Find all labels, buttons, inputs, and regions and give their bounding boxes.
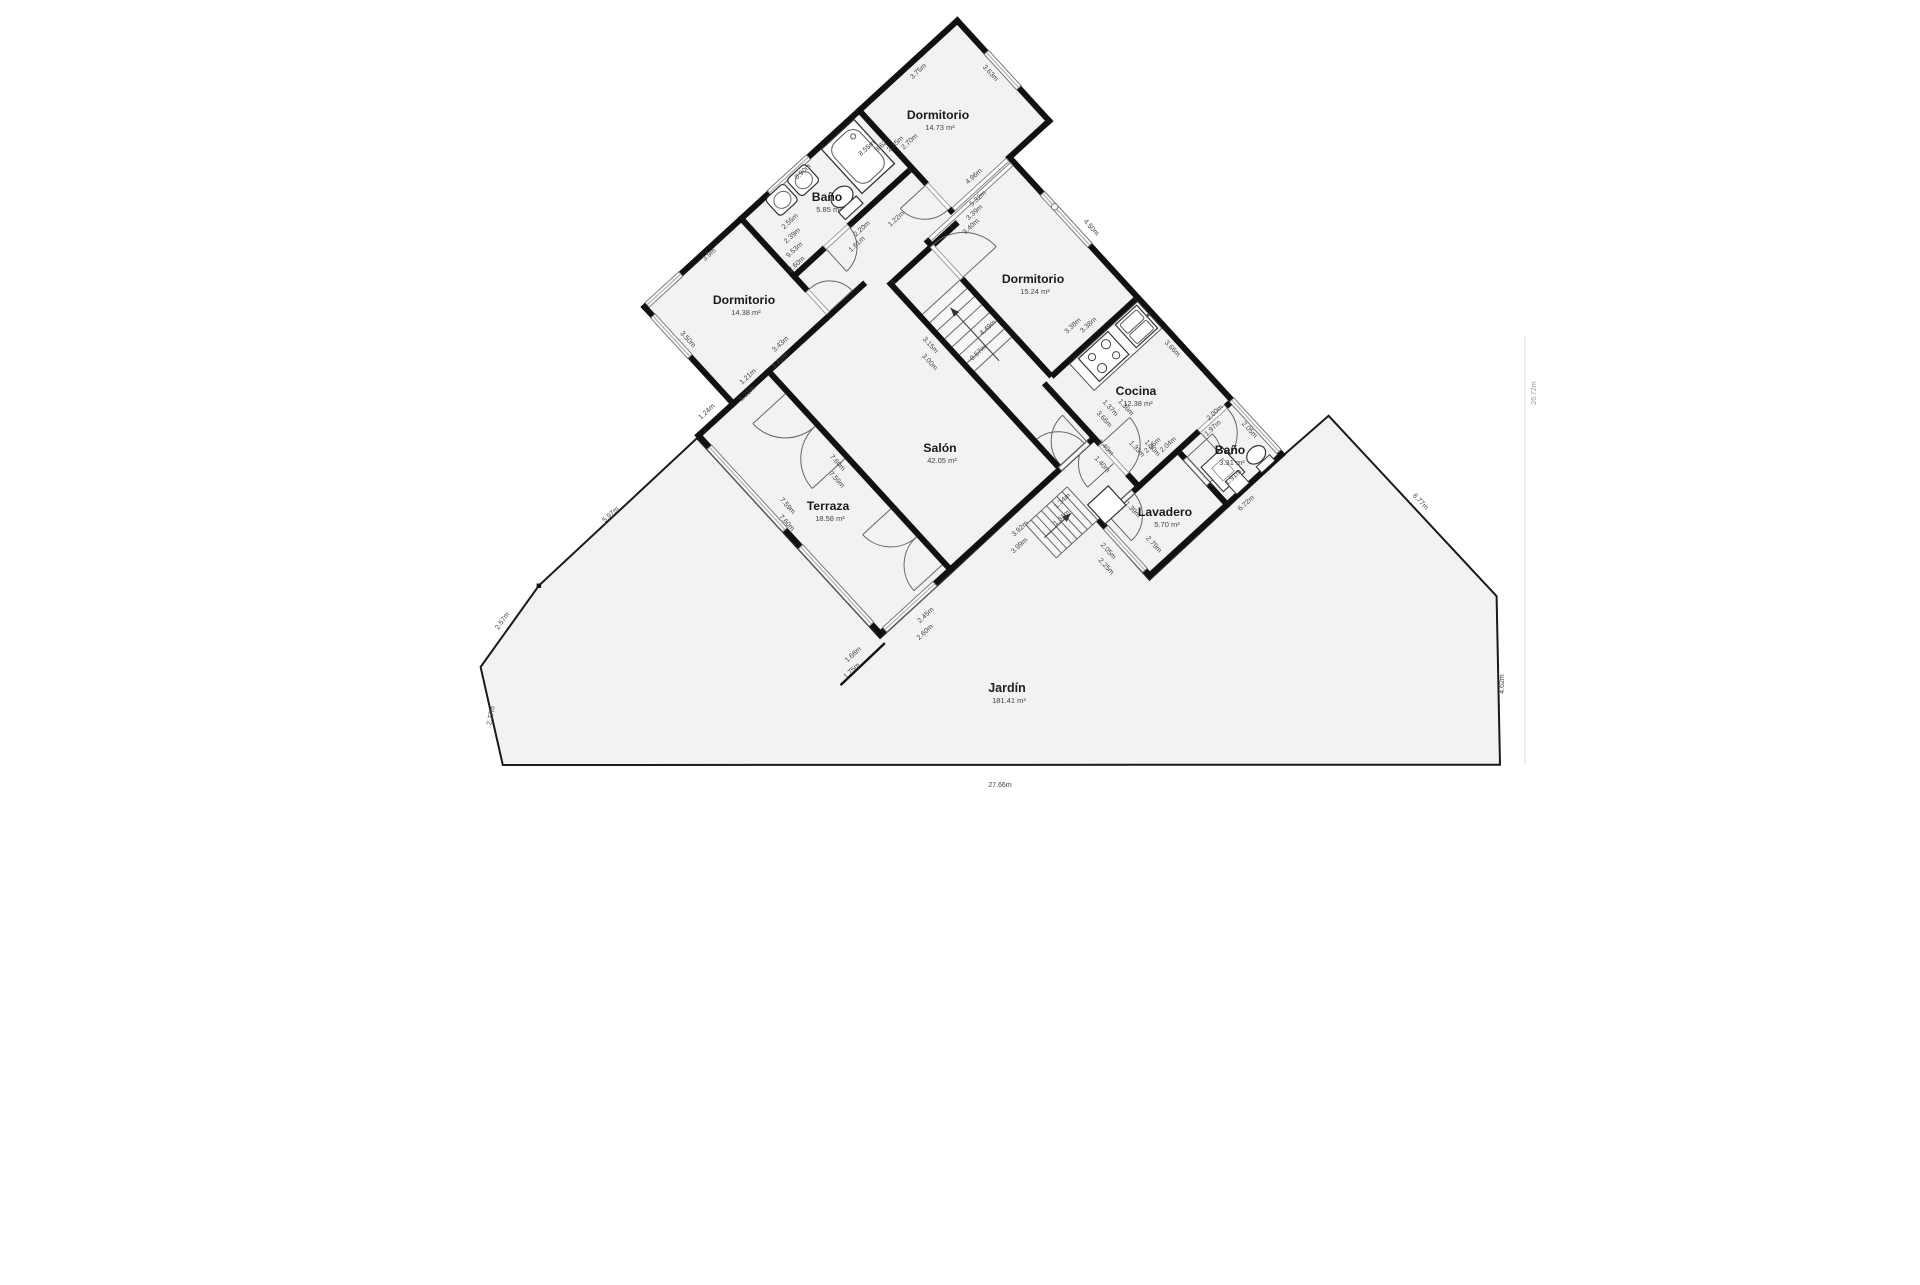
svg-text:5.85 m²: 5.85 m² — [816, 205, 842, 214]
svg-text:14.38 m²: 14.38 m² — [731, 308, 761, 317]
svg-text:Salón: Salón — [923, 441, 956, 455]
svg-text:Baño: Baño — [1215, 443, 1245, 457]
svg-text:15.24 m²: 15.24 m² — [1020, 287, 1050, 296]
svg-text:Jardín: Jardín — [988, 681, 1026, 695]
svg-text:27.66m: 27.66m — [988, 782, 1012, 789]
svg-text:Cocina: Cocina — [1116, 384, 1157, 398]
svg-text:18.58 m²: 18.58 m² — [815, 514, 845, 523]
svg-text:Dormitorio: Dormitorio — [713, 293, 775, 307]
svg-text:Dormitorio: Dormitorio — [1002, 272, 1064, 286]
svg-text:4.62m: 4.62m — [1499, 674, 1506, 694]
svg-text:Dormitorio: Dormitorio — [907, 108, 969, 122]
svg-text:Terraza: Terraza — [807, 499, 850, 513]
svg-text:14.73 m²: 14.73 m² — [925, 123, 955, 132]
svg-text:12.38 m²: 12.38 m² — [1123, 399, 1153, 408]
svg-text:181.41 m²: 181.41 m² — [992, 696, 1026, 705]
svg-text:Lavadero: Lavadero — [1138, 505, 1192, 519]
svg-text:42.05 m²: 42.05 m² — [927, 456, 957, 465]
svg-text:26.72m: 26.72m — [1531, 381, 1538, 405]
svg-text:Baño: Baño — [812, 190, 842, 204]
svg-text:5.70 m²: 5.70 m² — [1154, 520, 1180, 529]
svg-text:3.31 m²: 3.31 m² — [1219, 458, 1245, 467]
